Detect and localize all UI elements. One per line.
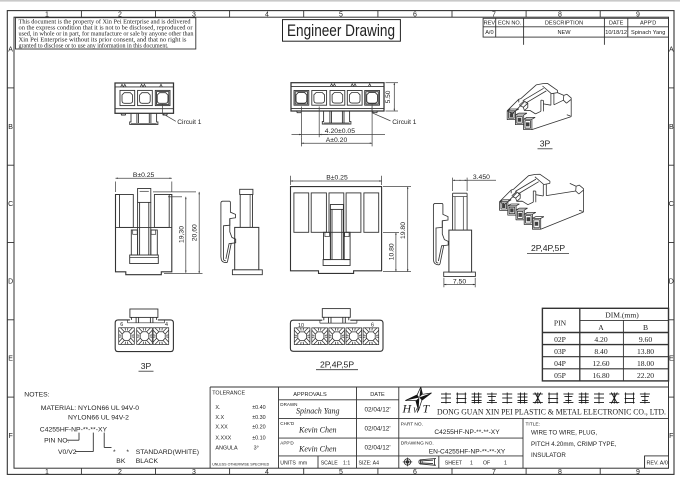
svg-text:5.50: 5.50 bbox=[385, 90, 392, 103]
svg-text:NEW: NEW bbox=[557, 30, 571, 36]
svg-text:PIN NO.: PIN NO. bbox=[44, 437, 69, 444]
svg-text:EN-C4255HF-NP-**-**-XY: EN-C4255HF-NP-**-**-XY bbox=[429, 448, 506, 455]
svg-text:02P: 02P bbox=[554, 335, 566, 344]
svg-text:DRAWING NO.: DRAWING NO. bbox=[401, 441, 434, 447]
svg-text:16.80: 16.80 bbox=[592, 371, 609, 380]
svg-text:±0.20: ±0.20 bbox=[252, 425, 265, 431]
svg-text:18.00: 18.00 bbox=[637, 359, 654, 368]
svg-text:PART NO.: PART NO. bbox=[401, 421, 423, 427]
svg-text:19,30: 19,30 bbox=[178, 226, 185, 243]
svg-text:Spinach Yang: Spinach Yang bbox=[631, 30, 665, 36]
svg-text:E: E bbox=[669, 356, 674, 363]
svg-text:F: F bbox=[8, 433, 12, 440]
svg-text:Engineer Drawing: Engineer Drawing bbox=[287, 22, 395, 40]
svg-text:UNLESS OTHERWISE SPECIFIED: UNLESS OTHERWISE SPECIFIED bbox=[212, 463, 269, 467]
svg-text:DIM.(mm): DIM.(mm) bbox=[605, 310, 639, 319]
svg-text:3P: 3P bbox=[540, 139, 551, 149]
svg-text:02/04/12': 02/04/12' bbox=[364, 426, 390, 433]
svg-text:X.XXX: X.XXX bbox=[215, 436, 231, 442]
svg-text:A/0: A/0 bbox=[485, 30, 493, 36]
svg-text:*: * bbox=[126, 449, 129, 456]
svg-text:4.20±0.05: 4.20±0.05 bbox=[325, 128, 355, 135]
svg-text:DONG GUAN XIN PEI PLASTIC & ME: DONG GUAN XIN PEI PLASTIC & METAL ELECTR… bbox=[437, 408, 666, 417]
svg-text:SIZE: A4: SIZE: A4 bbox=[359, 460, 380, 466]
svg-text:PIN: PIN bbox=[554, 318, 567, 327]
svg-text:This document is the property: This document is the property of Xin Pei… bbox=[19, 18, 191, 25]
svg-text:TOLERANCE: TOLERANCE bbox=[212, 391, 245, 397]
svg-text:10.80: 10.80 bbox=[388, 243, 395, 260]
svg-text:INSULATOR: INSULATOR bbox=[531, 452, 566, 459]
svg-text:X.XX: X.XX bbox=[215, 425, 228, 431]
svg-text:DATE: DATE bbox=[609, 21, 624, 27]
svg-text:13.80: 13.80 bbox=[637, 347, 654, 356]
svg-text:3: 3 bbox=[192, 469, 196, 476]
svg-text:12.60: 12.60 bbox=[592, 359, 609, 368]
svg-text:7: 7 bbox=[492, 469, 496, 476]
svg-text:ECN NO.: ECN NO. bbox=[498, 21, 522, 27]
svg-text:8: 8 bbox=[558, 11, 562, 18]
svg-text:C4255HF-NP-**-**-XY: C4255HF-NP-**-**-XY bbox=[434, 429, 500, 436]
svg-text:BK: BK bbox=[116, 458, 126, 465]
svg-text:APP'D: APP'D bbox=[280, 441, 294, 446]
svg-text:V0/V2: V0/V2 bbox=[58, 449, 77, 456]
svg-text:WIRE TO WIRE, PLUG,: WIRE TO WIRE, PLUG, bbox=[531, 430, 597, 437]
svg-text:02/04/12': 02/04/12' bbox=[364, 445, 390, 452]
svg-text:3°: 3° bbox=[254, 446, 259, 452]
svg-text:REV: REV bbox=[484, 21, 496, 27]
svg-text:CHK'D: CHK'D bbox=[280, 421, 295, 426]
svg-text:Kevin Chen: Kevin Chen bbox=[298, 445, 337, 454]
svg-text:DESCRIPTION: DESCRIPTION bbox=[545, 21, 583, 27]
svg-text:±0.30: ±0.30 bbox=[252, 415, 265, 421]
svg-text:*: * bbox=[113, 449, 116, 456]
svg-text:3.450: 3.450 bbox=[473, 174, 490, 181]
svg-text:SHEET: SHEET bbox=[445, 460, 463, 466]
svg-text:A±0.20: A±0.20 bbox=[326, 137, 348, 144]
svg-text:8: 8 bbox=[558, 469, 562, 476]
svg-text:4.20: 4.20 bbox=[594, 335, 607, 344]
svg-text:X.: X. bbox=[215, 405, 220, 411]
svg-text:7.50: 7.50 bbox=[453, 278, 466, 285]
svg-text:04P: 04P bbox=[554, 359, 566, 368]
svg-text:APP'D: APP'D bbox=[640, 21, 656, 27]
svg-text:mm: mm bbox=[299, 460, 308, 466]
svg-text:D: D bbox=[669, 278, 674, 285]
svg-text:ANGULA: ANGULA bbox=[215, 446, 238, 452]
svg-text:H: H bbox=[402, 402, 413, 416]
svg-text:6: 6 bbox=[120, 322, 123, 328]
svg-text:10/18/12: 10/18/12 bbox=[605, 30, 627, 36]
svg-text:22.20: 22.20 bbox=[637, 371, 654, 380]
svg-text:Kevin Chen: Kevin Chen bbox=[298, 426, 337, 435]
svg-text:B: B bbox=[643, 323, 648, 332]
svg-text:B±0.25: B±0.25 bbox=[326, 175, 348, 182]
svg-text:6: 6 bbox=[413, 469, 417, 476]
svg-text:MATERIAL: NYLON66 UL 94V-0: MATERIAL: NYLON66 UL 94V-0 bbox=[41, 405, 139, 412]
svg-text:Circuit 1: Circuit 1 bbox=[392, 119, 417, 126]
svg-text:STANDARD(WHITE): STANDARD(WHITE) bbox=[136, 449, 199, 456]
svg-text:BLACK: BLACK bbox=[136, 458, 159, 465]
svg-text:F: F bbox=[669, 433, 673, 440]
svg-text:2: 2 bbox=[118, 469, 122, 476]
svg-text:6: 6 bbox=[371, 323, 374, 329]
svg-text:20,60: 20,60 bbox=[192, 224, 199, 241]
svg-text:5: 5 bbox=[339, 469, 343, 476]
svg-text:DATE: DATE bbox=[370, 392, 385, 398]
svg-text:1: 1 bbox=[45, 469, 49, 476]
svg-text:19.80: 19.80 bbox=[400, 222, 407, 239]
svg-text:7: 7 bbox=[492, 11, 496, 18]
svg-text:APPROVALS: APPROVALS bbox=[293, 392, 327, 398]
svg-text:Circuit 1: Circuit 1 bbox=[177, 119, 202, 126]
svg-text:6: 6 bbox=[413, 11, 417, 18]
svg-text:SCALE: SCALE bbox=[321, 460, 339, 466]
svg-text:5: 5 bbox=[339, 11, 343, 18]
svg-text:A: A bbox=[669, 47, 674, 54]
svg-text:4: 4 bbox=[265, 469, 269, 476]
svg-text:UNITS: UNITS bbox=[280, 460, 296, 466]
svg-text:9: 9 bbox=[636, 469, 640, 476]
svg-text:DRAWN: DRAWN bbox=[280, 402, 297, 407]
svg-text:C4255HF-NP-**-**-XY: C4255HF-NP-**-**-XY bbox=[40, 426, 108, 433]
svg-text:1:1: 1:1 bbox=[343, 460, 350, 466]
svg-text:8.40: 8.40 bbox=[594, 347, 607, 356]
svg-text:9: 9 bbox=[636, 11, 640, 18]
svg-text:C: C bbox=[669, 201, 674, 208]
svg-text:REV. A/0: REV. A/0 bbox=[647, 460, 668, 466]
svg-text:1: 1 bbox=[470, 460, 473, 466]
svg-text:used, in whole or in part, for: used, in whole or in part, for manufactu… bbox=[19, 30, 194, 37]
svg-text:02/04/12': 02/04/12' bbox=[364, 407, 390, 414]
svg-text:OF: OF bbox=[483, 460, 490, 466]
svg-text:PITCH 4.20mm, CRIMP TYPE,: PITCH 4.20mm, CRIMP TYPE, bbox=[531, 441, 617, 448]
svg-text:TITLE:: TITLE: bbox=[526, 421, 540, 427]
svg-text:2P,4P,5P: 2P,4P,5P bbox=[531, 243, 565, 253]
svg-text:E: E bbox=[8, 356, 13, 363]
svg-text:2P,4P,5P: 2P,4P,5P bbox=[320, 360, 354, 370]
svg-text:9.60: 9.60 bbox=[639, 335, 652, 344]
svg-text:X.X: X.X bbox=[215, 415, 224, 421]
svg-text:Spinach Yang: Spinach Yang bbox=[296, 407, 340, 416]
svg-text:B: B bbox=[669, 124, 674, 131]
svg-text:B±0.25: B±0.25 bbox=[133, 172, 155, 179]
svg-text:±0.40: ±0.40 bbox=[252, 405, 265, 411]
svg-text:10: 10 bbox=[298, 323, 304, 329]
svg-text:B: B bbox=[8, 124, 13, 131]
svg-text:D: D bbox=[8, 278, 13, 285]
svg-text:4: 4 bbox=[265, 11, 269, 18]
svg-text:05P: 05P bbox=[554, 371, 566, 380]
svg-text:granted to disclose or to use: granted to disclose or to use any inform… bbox=[19, 42, 170, 49]
svg-text:4: 4 bbox=[165, 322, 168, 328]
svg-text:1: 1 bbox=[504, 460, 507, 466]
svg-text:A: A bbox=[598, 323, 604, 332]
svg-text:NOTES:: NOTES: bbox=[24, 392, 49, 399]
svg-text:03P: 03P bbox=[554, 347, 566, 356]
svg-text:C: C bbox=[8, 201, 13, 208]
svg-text:±0.10: ±0.10 bbox=[252, 436, 265, 442]
svg-text:NYLON66 UL 94V-2: NYLON66 UL 94V-2 bbox=[68, 415, 129, 422]
svg-text:3P: 3P bbox=[141, 361, 152, 371]
svg-text:A: A bbox=[8, 47, 13, 54]
